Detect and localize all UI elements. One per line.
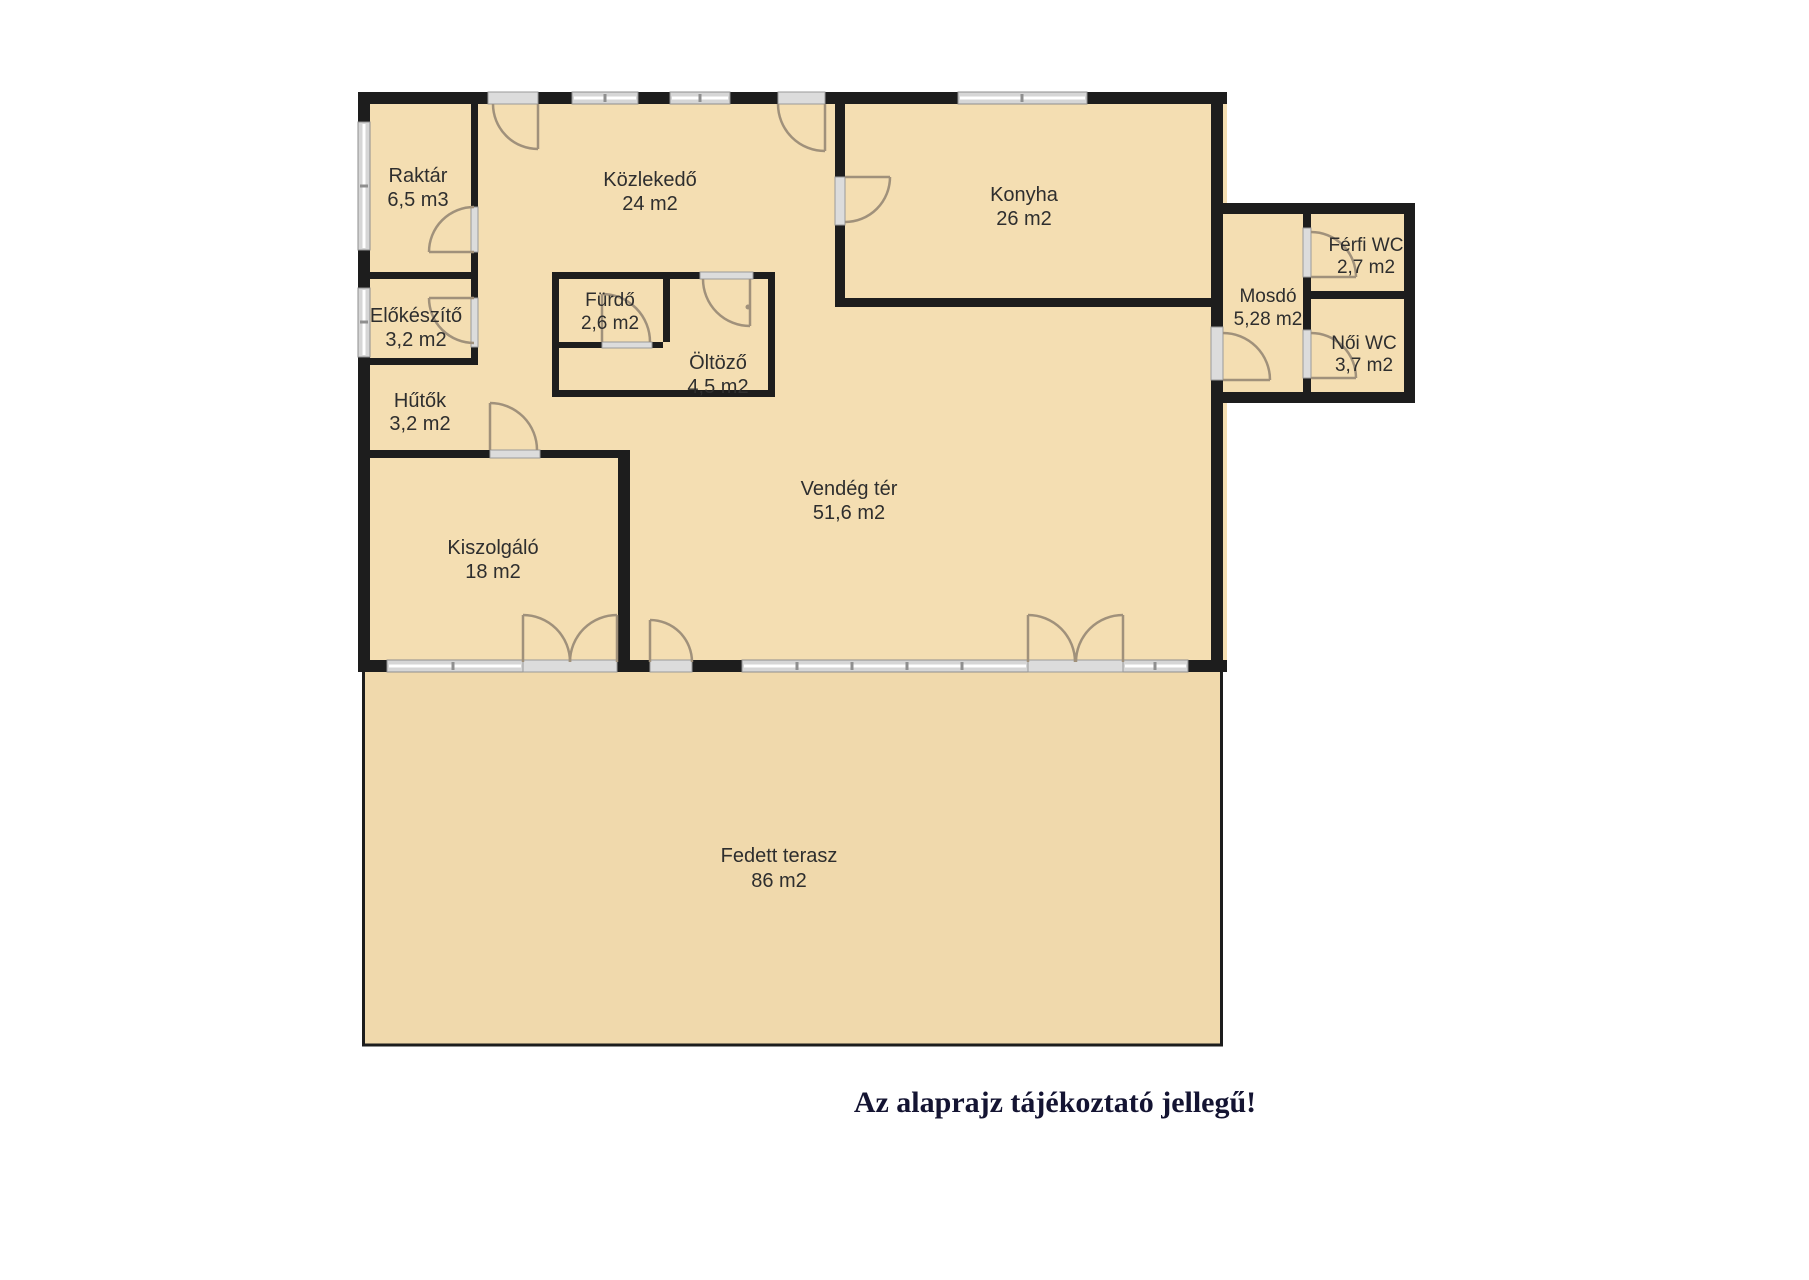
floor-plan-page: Raktár 6,5 m3 Közlekedő 24 m2 Konyha 26 … <box>0 0 1809 1280</box>
room-area: 3,2 m2 <box>389 413 450 435</box>
room-label-ferfi-wc: Férfi WC 2,7 m2 <box>1329 235 1404 278</box>
room-name: Raktár <box>389 165 448 187</box>
room-name: Női WC <box>1331 333 1396 354</box>
room-label-hutok: Hűtők 3,2 m2 <box>389 390 450 435</box>
room-area: 5,28 m2 <box>1234 309 1303 330</box>
room-name: Konyha <box>990 184 1059 206</box>
room-area: 3,7 m2 <box>1335 355 1393 376</box>
floor-plan: Raktár 6,5 m3 Közlekedő 24 m2 Konyha 26 … <box>0 0 1809 1280</box>
room-area: 2,6 m2 <box>581 313 639 334</box>
room-name: Közlekedő <box>603 169 696 191</box>
room-area: 6,5 m3 <box>387 189 448 211</box>
room-area: 26 m2 <box>996 208 1052 230</box>
room-name: Fürdő <box>585 290 635 311</box>
room-name: Kiszolgáló <box>447 537 538 559</box>
room-area: 86 m2 <box>751 870 807 892</box>
main-floor <box>358 92 1227 672</box>
room-name: Hűtők <box>394 390 447 412</box>
room-name: Fedett terasz <box>721 845 838 867</box>
room-label-noi-wc: Női WC 3,7 m2 <box>1331 333 1396 376</box>
room-name: Férfi WC <box>1329 235 1404 256</box>
room-name: Vendég tér <box>801 478 898 500</box>
room-area: 2,7 m2 <box>1337 257 1395 278</box>
room-area: 51,6 m2 <box>813 502 885 524</box>
room-area: 18 m2 <box>465 561 521 583</box>
room-name: Öltöző <box>689 352 747 374</box>
room-name: Mosdó <box>1239 286 1296 307</box>
room-area: 24 m2 <box>622 193 678 215</box>
room-area: 4,5 m2 <box>687 376 748 398</box>
disclaimer-caption: Az alaprajz tájékoztató jellegű! <box>854 1086 1256 1119</box>
room-area: 3,2 m2 <box>385 329 446 351</box>
room-name: Előkészítő <box>370 305 462 327</box>
